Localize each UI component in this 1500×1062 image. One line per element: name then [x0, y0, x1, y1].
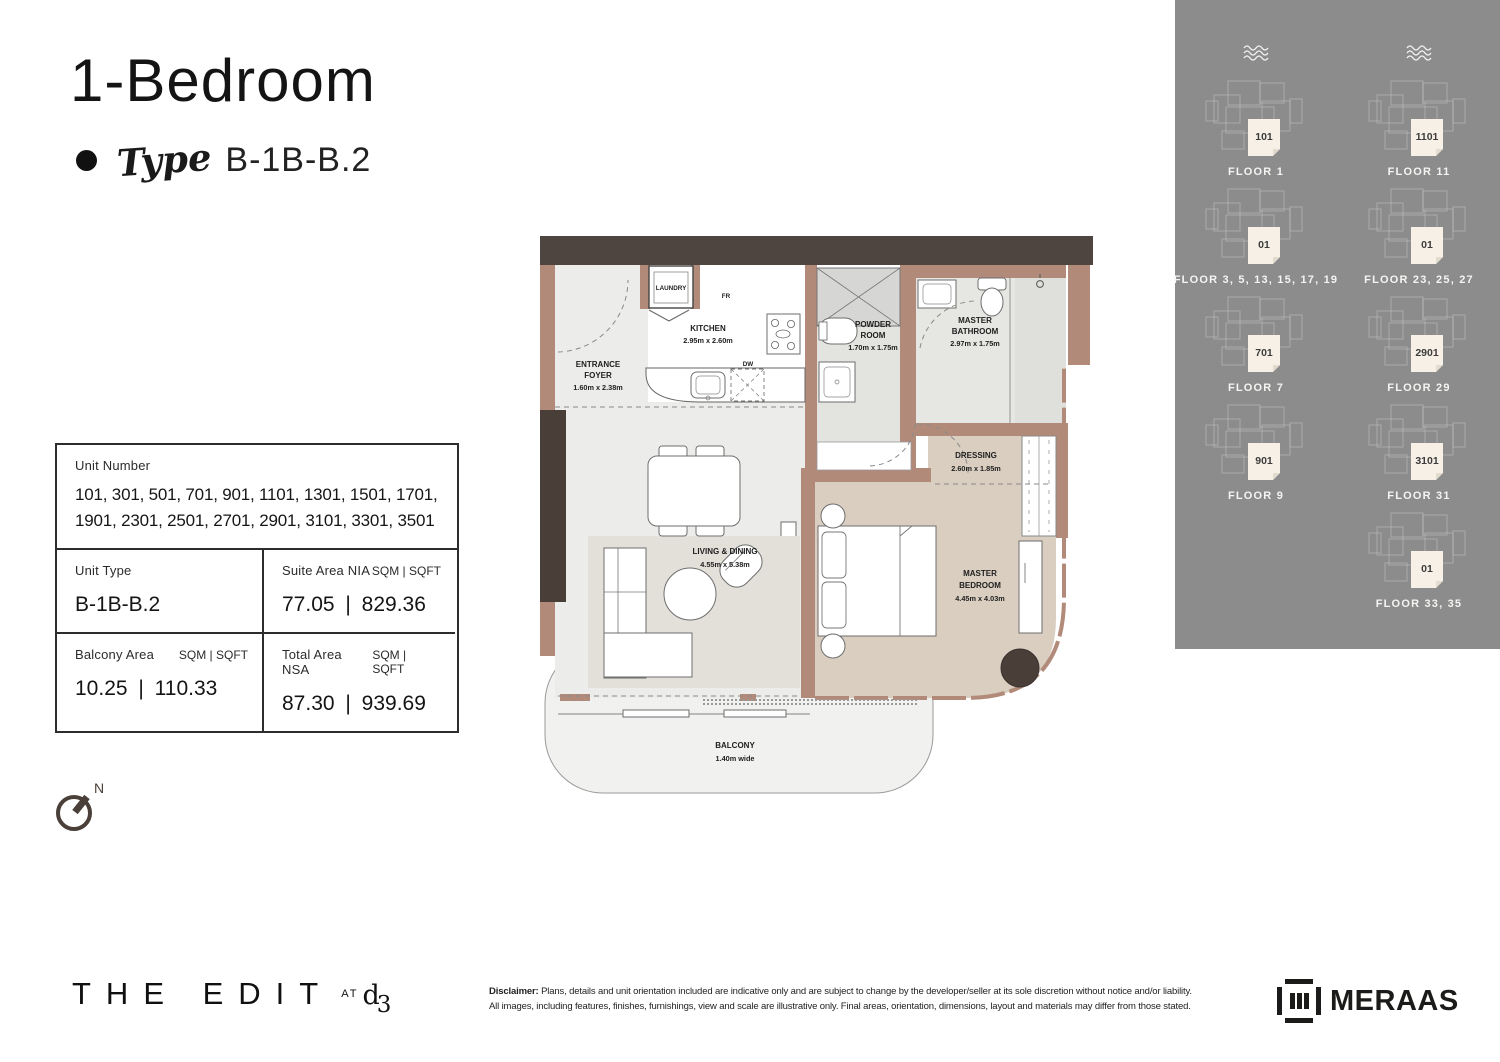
fridge-label: FR — [722, 293, 731, 300]
suite-area-label: Suite Area NIA — [282, 563, 370, 578]
unit-info-grid: Unit Type B-1B-B.2 Suite Area NIA SQM | … — [57, 550, 457, 731]
disclaimer-line2: All images, including features, finishes… — [489, 1001, 1191, 1012]
svg-text:BEDROOM: BEDROOM — [959, 581, 1001, 590]
accent-chair — [1001, 649, 1039, 687]
balcony-area-units: SQM | SQFT — [179, 648, 248, 662]
type-script-label: Type — [116, 135, 213, 185]
type-value: B-1B-B.2 — [225, 141, 371, 180]
floor-key-column-left: 101 FLOOR 1 01 FLOOR 3, 5, 13, 15, 17, 1… — [1175, 0, 1337, 507]
suite-area-cell: Suite Area NIA SQM | SQFT 77.05 | 829.36 — [264, 550, 455, 634]
bullet-icon — [76, 150, 97, 171]
svg-text:2.60m x 1.85m: 2.60m x 1.85m — [951, 464, 1001, 473]
svg-text:901: 901 — [1255, 455, 1273, 467]
the-edit-wordmark: THE EDIT — [72, 976, 333, 1012]
svg-text:ROOM: ROOM — [861, 331, 886, 340]
floor-key-item: 2901 FLOOR 29 — [1367, 291, 1471, 399]
floor-key-item: 01 FLOOR 23, 25, 27 — [1364, 183, 1474, 291]
svg-text:LIVING & DINING: LIVING & DINING — [693, 547, 758, 556]
bedroom-dresser — [1019, 541, 1042, 633]
kitchen-island — [646, 368, 805, 402]
bathroom-sink — [918, 280, 956, 308]
floor-key-item: 701 FLOOR 7 — [1204, 291, 1308, 399]
dressing-wardrobe — [1022, 436, 1056, 536]
unit-numbers-line1: 101, 301, 501, 701, 901, 1101, 1301, 150… — [75, 485, 438, 504]
unit-type-row: Type B-1B-B.2 — [76, 138, 371, 182]
svg-text:01: 01 — [1421, 239, 1433, 251]
floor-plan: ENTRANCE FOYER 1.60m x 2.38m LAUNDRY KIT… — [528, 228, 1108, 828]
floor-key-item: 01 FLOOR 3, 5, 13, 15, 17, 19 — [1174, 183, 1339, 291]
floor-key-item: 901 FLOOR 9 — [1204, 399, 1308, 507]
bed — [818, 526, 936, 636]
svg-text:3101: 3101 — [1415, 455, 1439, 467]
balcony-area-value: 10.25 | 110.33 — [75, 677, 248, 701]
meraas-icon — [1277, 979, 1321, 1023]
floor-key-item: 3101 FLOOR 31 — [1367, 399, 1471, 507]
svg-text:KITCHEN: KITCHEN — [690, 324, 726, 333]
total-area-label: Total Area NSA — [282, 647, 372, 677]
svg-text:FOYER: FOYER — [584, 371, 612, 380]
disclaimer-line1: Plans, details and unit orientation incl… — [541, 986, 1192, 997]
floor-key-item: 01 FLOOR 33, 35 — [1367, 507, 1471, 615]
unit-type-value: B-1B-B.2 — [75, 593, 248, 617]
svg-text:ENTRANCE: ENTRANCE — [576, 360, 621, 369]
unit-number-cell: Unit Number 101, 301, 501, 701, 901, 110… — [57, 445, 457, 550]
brochure-page: 1-Bedroom Type B-1B-B.2 Unit Number 101,… — [0, 0, 1500, 1062]
nightstand — [821, 504, 845, 528]
disclaimer-label: Disclaimer: — [489, 986, 539, 997]
svg-text:BATHROOM: BATHROOM — [952, 327, 999, 336]
unit-info-table: Unit Number 101, 301, 501, 701, 901, 110… — [55, 443, 459, 733]
unit-number-label: Unit Number — [75, 458, 439, 473]
exterior-top-band — [540, 236, 1093, 265]
suite-area-units: SQM | SQFT — [372, 564, 441, 578]
dining-table — [648, 446, 740, 536]
disclaimer-text: Disclaimer: Plans, details and unit orie… — [489, 985, 1234, 1014]
unit-numbers-line2: 1901, 2301, 2501, 2701, 2901, 3101, 3301… — [75, 511, 434, 530]
brand-at-label: AT — [341, 988, 358, 1000]
total-area-cell: Total Area NSA SQM | SQFT 87.30 | 939.69 — [264, 634, 455, 731]
waves-icon — [1243, 44, 1269, 75]
svg-text:4.55m x 5.38m: 4.55m x 5.38m — [700, 560, 750, 569]
floor-key-item: 1101 FLOOR 11 — [1367, 75, 1471, 183]
shower-floor — [1015, 278, 1066, 423]
svg-text:01: 01 — [1258, 239, 1270, 251]
svg-text:MASTER: MASTER — [958, 316, 992, 325]
stove — [767, 314, 800, 354]
the-edit-logo: THE EDIT AT d3 — [72, 976, 394, 1012]
room-label-laundry: LAUNDRY — [656, 285, 687, 292]
d3-logo: d3 — [362, 980, 394, 1011]
powder-toilet — [819, 318, 857, 344]
dishwasher-label: DW — [743, 361, 754, 368]
sliding-door-leaf — [623, 710, 689, 717]
total-area-units: SQM | SQFT — [372, 648, 441, 676]
coffee-table — [664, 568, 716, 620]
svg-text:DRESSING: DRESSING — [955, 451, 997, 460]
unit-number-values: 101, 301, 501, 701, 901, 1101, 1301, 150… — [75, 482, 439, 533]
powder-sink — [819, 362, 855, 402]
svg-text:MASTER: MASTER — [963, 569, 997, 578]
svg-text:2901: 2901 — [1415, 347, 1439, 359]
floor-key-item: 101 FLOOR 1 — [1204, 75, 1308, 183]
svg-text:01: 01 — [1421, 563, 1433, 575]
svg-text:BALCONY: BALCONY — [715, 741, 755, 750]
compass-icon: N — [48, 776, 120, 842]
svg-text:1101: 1101 — [1416, 131, 1439, 143]
floor-key-sidebar: 101 FLOOR 1 01 FLOOR 3, 5, 13, 15, 17, 1… — [1175, 0, 1500, 649]
waves-icon — [1406, 44, 1432, 75]
page-title: 1-Bedroom — [70, 46, 376, 115]
svg-text:2.95m x 2.60m: 2.95m x 2.60m — [683, 336, 733, 345]
svg-text:4.45m x 4.03m: 4.45m x 4.03m — [955, 594, 1005, 603]
unit-type-cell: Unit Type B-1B-B.2 — [57, 550, 264, 634]
svg-text:701: 701 — [1255, 347, 1273, 359]
meraas-logo: MERAAS — [1277, 979, 1459, 1023]
service-shaft — [817, 268, 900, 326]
meraas-wordmark: MERAAS — [1330, 985, 1459, 1018]
balcony-area-cell: Balcony Area SQM | SQFT 10.25 | 110.33 — [57, 634, 264, 731]
floor-key-column-right: 1101 FLOOR 11 01 FLOOR 23, 25, 27 2901 F… — [1338, 0, 1500, 615]
unit-type-label: Unit Type — [75, 563, 131, 578]
svg-text:1.70m x 1.75m: 1.70m x 1.75m — [848, 343, 898, 352]
compass-n-label: N — [94, 780, 104, 796]
suite-area-value: 77.05 | 829.36 — [282, 593, 441, 617]
structural-column — [540, 410, 566, 602]
svg-text:2.97m x 1.75m: 2.97m x 1.75m — [950, 339, 1000, 348]
svg-text:POWDER: POWDER — [855, 320, 891, 329]
svg-text:1.40m wide: 1.40m wide — [716, 754, 755, 763]
total-area-value: 87.30 | 939.69 — [282, 692, 441, 716]
svg-text:101: 101 — [1255, 131, 1273, 143]
sliding-door-leaf — [724, 710, 786, 717]
balcony-area-label: Balcony Area — [75, 647, 154, 662]
nightstand — [821, 634, 845, 658]
svg-text:1.60m x 2.38m: 1.60m x 2.38m — [573, 383, 623, 392]
